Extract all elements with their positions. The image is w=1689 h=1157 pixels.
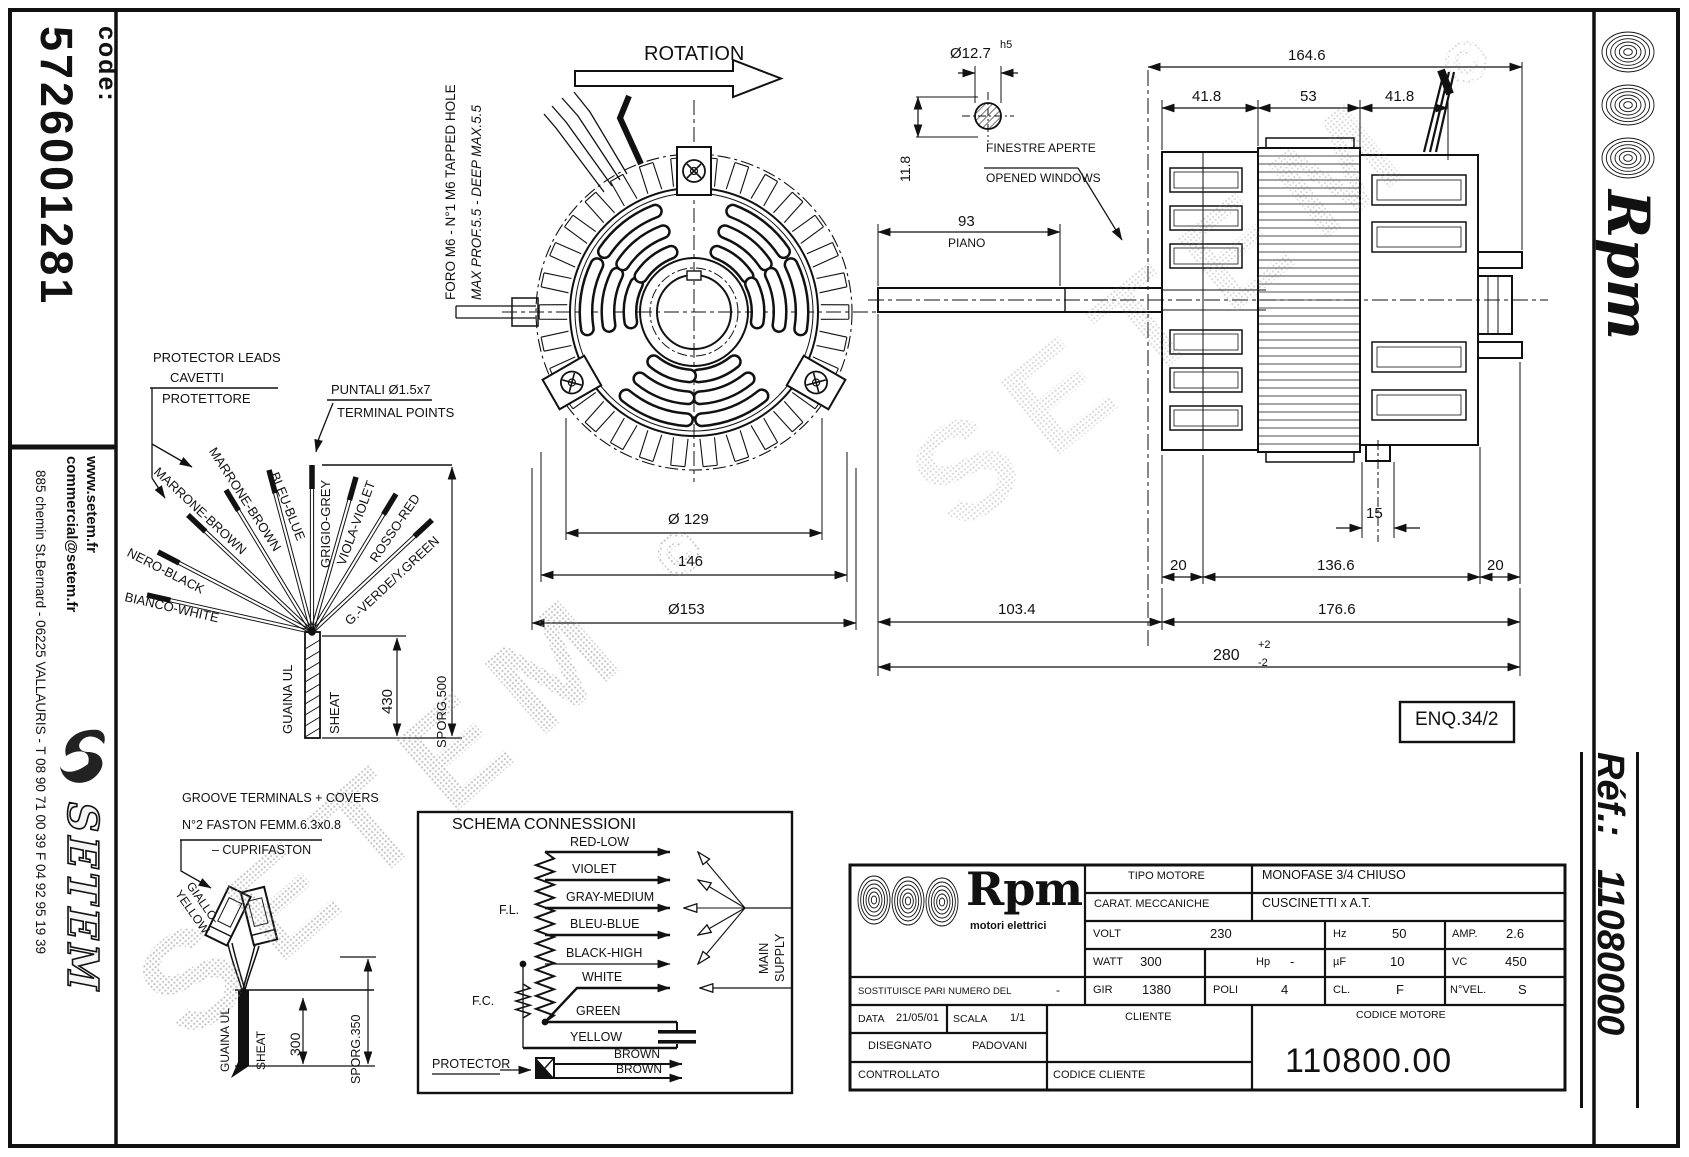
dim-153: Ø153 — [668, 602, 705, 618]
vc-value: 450 — [1505, 955, 1527, 969]
piano-label: PIANO — [948, 237, 985, 250]
reference-block: Réf.: 11080000 — [1580, 752, 1639, 1108]
volt-label: VOLT — [1093, 929, 1121, 941]
dim-41b: 41.8 — [1385, 89, 1414, 105]
sostituisce-value: - — [1056, 984, 1060, 997]
scala-label: SCALA — [953, 1014, 987, 1025]
rpm-logo-coils — [858, 876, 958, 926]
dim-15: 15 — [1366, 506, 1383, 522]
tap-red: RED-LOW — [570, 836, 629, 849]
cuprifaston-label: – CUPRIFASTON — [212, 844, 311, 857]
carat-label: CARAT. MECCANICHE — [1094, 899, 1209, 911]
code-block: code: 5726001281 — [30, 26, 121, 306]
dim-129: Ø 129 — [668, 512, 709, 528]
code-label: code: — [92, 26, 121, 306]
code-value: 5726001281 — [30, 26, 82, 306]
tap-gray: GRAY-MEDIUM — [566, 891, 654, 904]
data-label: DATA — [858, 1014, 884, 1025]
protector-leads-en: PROTECTOR LEADS — [153, 351, 281, 365]
disegnato-value: PADOVANI — [972, 1041, 1027, 1053]
contact-block: www.setem.fr commercial@setem.fr — [60, 456, 100, 612]
gir-label: GIR — [1093, 985, 1113, 997]
dim-20a: 20 — [1170, 558, 1187, 574]
dim-sporg-500: SPORG.500 — [435, 676, 449, 748]
uf-label: µF — [1333, 957, 1346, 969]
tap-white: WHITE — [582, 971, 622, 984]
engineering-drawing-sheet: SETEM © SETEM © code: 5726001281 www.set… — [0, 0, 1689, 1157]
rpm-logo-coils-side — [1602, 32, 1654, 178]
dim-103: 103.4 — [998, 602, 1036, 618]
watt-value: 300 — [1140, 955, 1162, 969]
dim-key: 11.8 — [898, 156, 913, 182]
dim-shaft-dia: Ø12.7 — [950, 46, 991, 62]
sheath-label-en: SHEAT — [328, 692, 342, 734]
sheath2-label-it: GUAINA UL — [219, 1008, 232, 1072]
rpm-logo-text-side: Rpm — [1594, 190, 1662, 340]
dim-shaft-tol: h5 — [1000, 40, 1012, 52]
protector-leads-it1: CAVETTI — [170, 371, 224, 385]
codice-motore-label: CODICE MOTORE — [1356, 1010, 1446, 1021]
data-value: 21/05/01 — [896, 1013, 939, 1025]
cliente-label: CLIENTE — [1125, 1012, 1171, 1024]
tap-bleu: BLEU-BLUE — [570, 918, 639, 931]
codice-cliente-label: CODICE CLIENTE — [1053, 1070, 1145, 1082]
rotation-arrow — [575, 60, 781, 97]
amp-value: 2.6 — [1506, 927, 1524, 941]
fl-label: F.L. — [499, 904, 519, 917]
tap-violet: VIOLET — [572, 863, 616, 876]
controllato-label: CONTROLLATO — [858, 1070, 940, 1082]
company-address: 885 chemin St.Bernard - 06225 VALLAURIS … — [33, 470, 48, 954]
brown-bottom-label: BROWN — [616, 1063, 662, 1076]
website-link[interactable]: www.setem.fr — [83, 456, 100, 612]
ref-value: 11080000 — [1589, 869, 1631, 1035]
hp-value: - — [1290, 955, 1294, 969]
nvel-label: N°VEL. — [1450, 985, 1486, 997]
email-link[interactable]: commercial@setem.fr — [63, 456, 80, 612]
dim-146: 146 — [678, 554, 703, 570]
dim-164: 164.6 — [1288, 48, 1326, 64]
wire-label-grigio: GRIGIO-GREY — [319, 480, 333, 568]
volt-value: 230 — [1210, 927, 1232, 941]
dim-sporg-350: SPORG.350 — [350, 1015, 363, 1084]
rpm-logo-text: Rpm — [966, 862, 1082, 916]
terminal-points-en: TERMINAL POINTS — [337, 406, 454, 420]
ref-label: Réf.: — [1589, 752, 1631, 836]
cl-value: F — [1396, 983, 1404, 997]
poli-label: POLI — [1213, 985, 1238, 997]
uf-value: 10 — [1390, 955, 1404, 969]
bolt-boss — [677, 147, 711, 195]
schema-title: SCHEMA CONNESSIONI — [452, 817, 636, 834]
main-supply-1: MAIN — [758, 943, 771, 974]
hp-label: Hp — [1256, 957, 1270, 969]
hz-value: 50 — [1392, 927, 1406, 941]
nvel-value: S — [1518, 983, 1527, 997]
dim-136: 136.6 — [1317, 558, 1355, 574]
dim-41a: 41.8 — [1192, 89, 1221, 105]
sostituisce-label: SOSTITUISCE PARI NUMERO DEL — [858, 987, 1011, 997]
sheath-label-it: GUAINA UL — [281, 665, 295, 734]
setem-logo-mark — [60, 730, 105, 783]
dim-93: 93 — [958, 214, 975, 230]
dim-280-tol-plus: +2 — [1258, 640, 1271, 652]
dim-53: 53 — [1300, 89, 1317, 105]
fc-label: F.C. — [472, 995, 494, 1008]
rotation-label: ROTATION — [644, 44, 744, 65]
setem-logo-text: SETEM — [58, 802, 107, 994]
brown-top-label: BROWN — [614, 1048, 660, 1061]
vc-label: VC — [1452, 957, 1467, 969]
groove-title: GROOVE TERMINALS + COVERS — [182, 792, 379, 805]
tap-black: BLACK-HIGH — [566, 947, 642, 960]
faston-label: N°2 FASTON FEMM.6.3x0.8 — [182, 819, 341, 832]
dim-430: 430 — [380, 689, 396, 714]
terminal-points-it: PUNTALI Ø1.5x7 — [331, 383, 430, 397]
gir-value: 1380 — [1142, 983, 1171, 997]
rpm-logo-subtext: motori elettrici — [970, 920, 1046, 932]
cl-label: CL. — [1333, 985, 1350, 997]
hz-label: Hz — [1333, 929, 1346, 941]
main-supply-2: SUPPLY — [774, 934, 787, 982]
poli-value: 4 — [1281, 983, 1288, 997]
windows-label-it: FINESTRE APERTE — [986, 142, 1096, 155]
scala-value: 1/1 — [1010, 1013, 1025, 1025]
tipo-motore-label: TIPO MOTORE — [1128, 871, 1205, 883]
protector-leads-it2: PROTETTORE — [162, 392, 251, 406]
protector-label: PROTECTOR — [432, 1058, 510, 1071]
tap-green: GREEN — [576, 1005, 620, 1018]
tap-yellow: YELLOW — [570, 1031, 622, 1044]
watt-label: WATT — [1093, 957, 1123, 969]
tipo-motore-value: MONOFASE 3/4 CHIUSO — [1262, 869, 1406, 882]
windows-label-en: OPENED WINDOWS — [986, 172, 1101, 185]
carat-value: CUSCINETTI x A.T. — [1262, 897, 1371, 910]
enq-label: ENQ.34/2 — [1415, 710, 1498, 730]
sheath2-label-en: SHEAT — [255, 1031, 268, 1070]
dim-280-tol-minus: -2 — [1258, 658, 1268, 670]
amp-label: AMP. — [1452, 929, 1477, 941]
winding-symbol — [516, 852, 554, 1022]
dim-20b: 20 — [1487, 558, 1504, 574]
disegnato-label: DISEGNATO — [868, 1041, 932, 1053]
dim-300: 300 — [288, 1033, 303, 1056]
tapped-hole-note-1: FORO M6 - N°1 M6 TAPPED HOLE — [444, 84, 458, 300]
codice-motore-value: 110800.00 — [1285, 1044, 1452, 1080]
dim-176: 176.6 — [1318, 602, 1356, 618]
tapped-hole-note-2: MAX PROF.5.5 - DEEP MAX.5.5 — [470, 105, 484, 300]
dim-280: 280 — [1213, 648, 1240, 665]
